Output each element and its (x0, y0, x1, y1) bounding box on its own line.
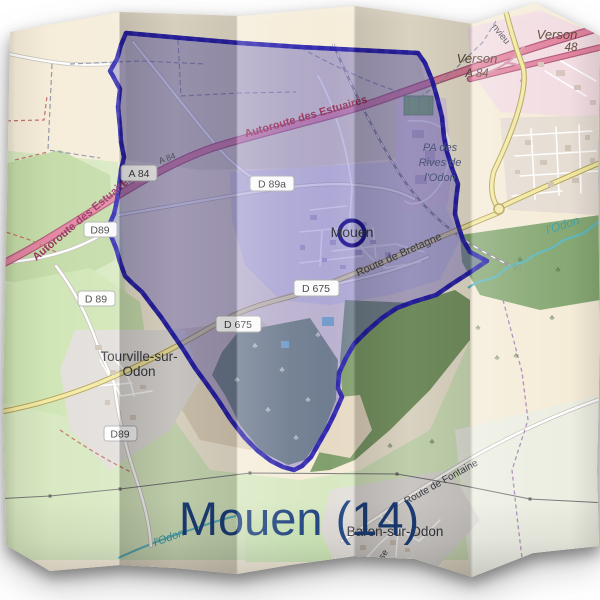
verson-w-ref: A 84 (464, 68, 488, 80)
svg-text:l'Odon: l'Odon (424, 172, 455, 184)
map-page: ♣♣♣ ♣♣♣ ♣ ♣♣♣ ♣♣♣ ♣♣ Autoroute des Estu (0, 0, 600, 600)
svg-text:D 89: D 89 (85, 294, 107, 306)
svg-text:♣: ♣ (549, 313, 555, 322)
roundabout (494, 204, 504, 214)
badge-d675-east: D 675 (294, 280, 339, 296)
svg-text:D 675: D 675 (302, 283, 330, 295)
svg-text:♣: ♣ (293, 433, 299, 442)
verson-w-label: Verson (457, 51, 498, 66)
svg-text:D89: D89 (110, 429, 129, 441)
svg-text:♣: ♣ (279, 365, 285, 374)
map-title: Mouen (14) (179, 492, 419, 545)
svg-text:♣: ♣ (265, 405, 271, 414)
badge-a84: A 84 (121, 165, 157, 181)
svg-text:♣: ♣ (315, 330, 321, 339)
svg-text:♣: ♣ (252, 341, 258, 350)
badge-d675-west: D 675 (216, 316, 261, 332)
svg-text:♣: ♣ (387, 441, 393, 450)
pa-zone-label: PA des Rives de l'Odon (419, 142, 462, 184)
svg-text:♣: ♣ (555, 265, 561, 274)
svg-text:♣: ♣ (429, 437, 435, 446)
map-canvas: ♣♣♣ ♣♣♣ ♣ ♣♣♣ ♣♣♣ ♣♣ Autoroute des Estu (0, 0, 600, 600)
svg-text:D89: D89 (90, 225, 109, 237)
svg-text:♣: ♣ (475, 323, 481, 332)
folded-paper-map: ♣♣♣ ♣♣♣ ♣ ♣♣♣ ♣♣♣ ♣♣ Autoroute des Estu (0, 0, 600, 600)
svg-text:PA des: PA des (423, 142, 458, 154)
svg-text:Tourville-sur-: Tourville-sur- (100, 349, 177, 364)
svg-text:♣: ♣ (513, 351, 519, 360)
verson-ne-label: Verson (537, 27, 578, 42)
badge-d89a: D 89a (250, 176, 294, 191)
badge-d89-north: D89 (84, 222, 117, 237)
badge-d89-south: D89 (104, 426, 137, 441)
svg-text:♣: ♣ (494, 353, 500, 362)
svg-text:D 89a: D 89a (258, 179, 286, 191)
svg-text:Odon: Odon (122, 364, 155, 379)
svg-text:A 84: A 84 (128, 168, 149, 180)
badge-d89-west: D 89 (78, 291, 115, 306)
svg-text:♣: ♣ (234, 375, 240, 384)
svg-text:♣: ♣ (305, 395, 311, 404)
town-label-mouen: Mouen (331, 224, 374, 240)
svg-text:D 675: D 675 (224, 319, 252, 331)
svg-text:Rives de: Rives de (419, 157, 462, 169)
elevation-label: 90 (513, 263, 522, 272)
folded-paper-shadow: ♣♣♣ ♣♣♣ ♣ ♣♣♣ ♣♣♣ ♣♣ Autoroute des Estu (0, 0, 600, 600)
verson-ne-ref: 48 (565, 42, 578, 54)
